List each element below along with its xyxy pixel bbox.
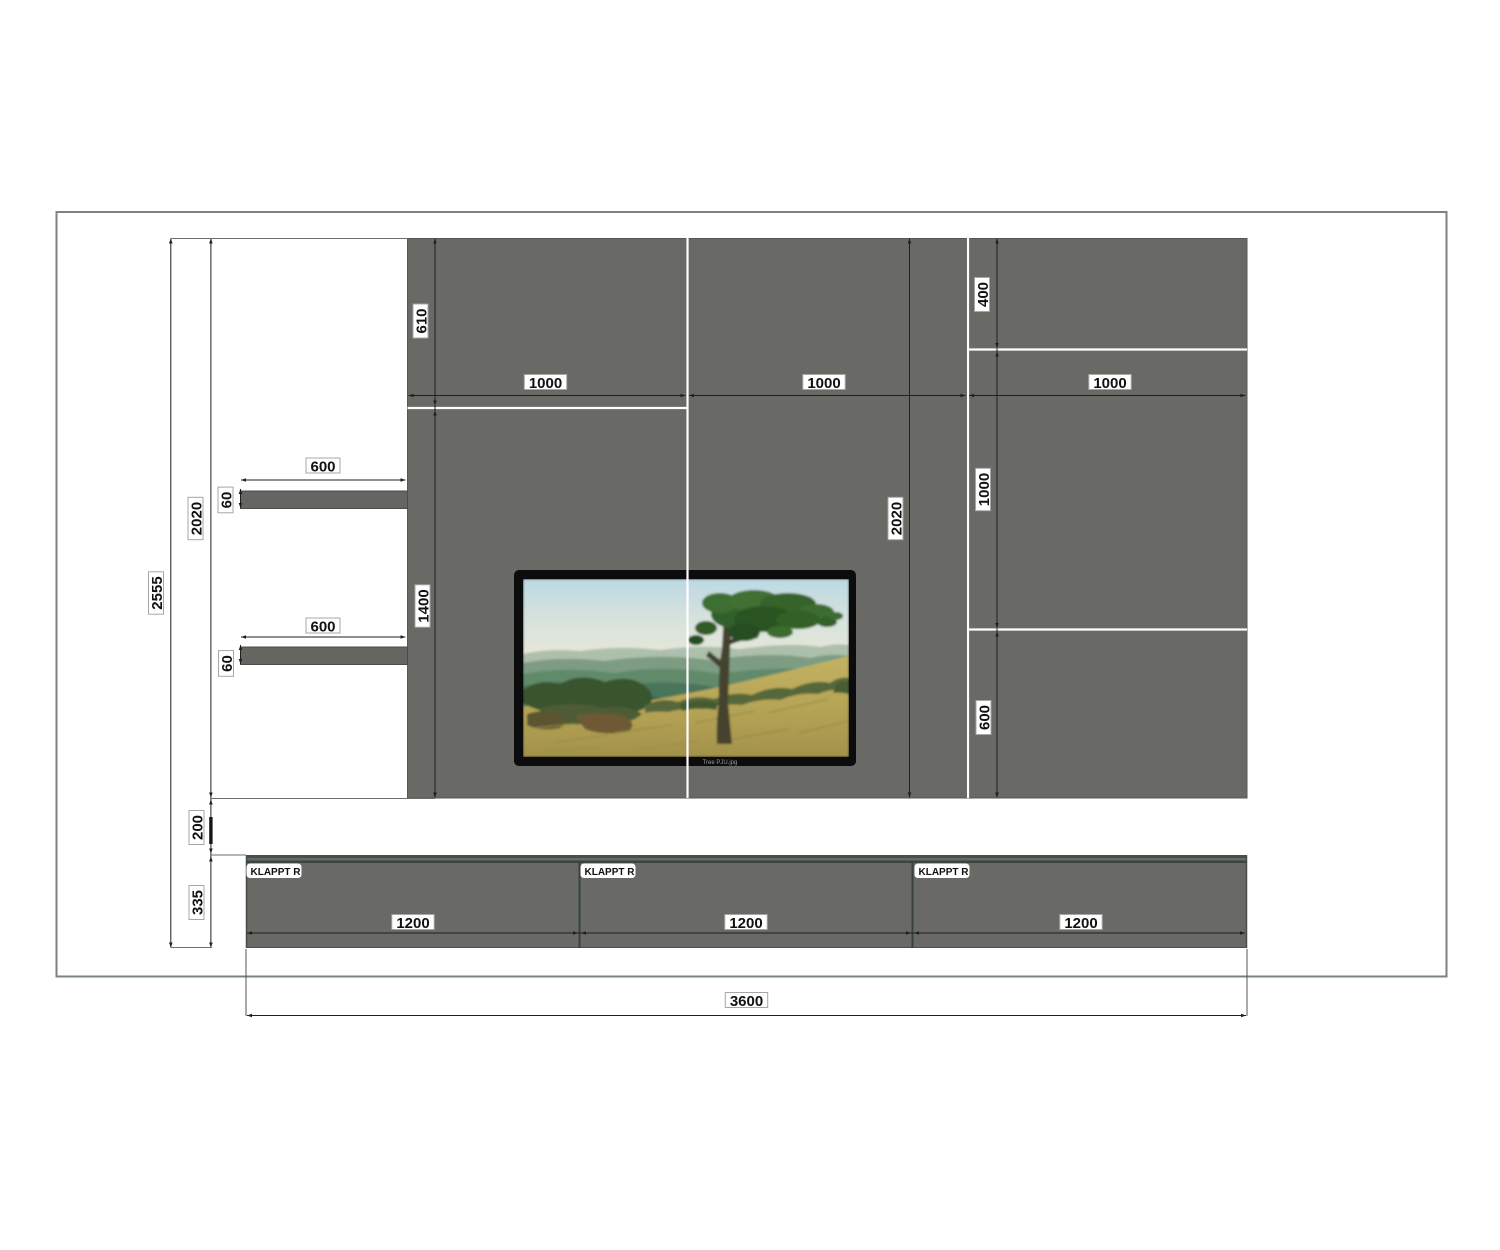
svg-text:1200: 1200 — [1064, 915, 1097, 932]
svg-text:1400: 1400 — [416, 589, 433, 622]
svg-text:1000: 1000 — [976, 473, 993, 506]
svg-text:KLAPPT R: KLAPPT R — [919, 867, 970, 878]
svg-text:1000: 1000 — [807, 375, 840, 392]
svg-text:335: 335 — [190, 890, 207, 915]
svg-text:600: 600 — [977, 705, 994, 730]
svg-text:Tree PJU.jpg: Tree PJU.jpg — [703, 760, 738, 766]
svg-text:60: 60 — [219, 655, 236, 672]
svg-text:60: 60 — [219, 492, 236, 509]
svg-text:KLAPPT R: KLAPPT R — [251, 867, 302, 878]
svg-text:2555: 2555 — [149, 576, 166, 609]
svg-text:1200: 1200 — [396, 915, 429, 932]
svg-text:2020: 2020 — [189, 502, 206, 535]
svg-text:KLAPPT R: KLAPPT R — [585, 867, 636, 878]
svg-text:3600: 3600 — [730, 993, 763, 1010]
svg-text:1000: 1000 — [529, 375, 562, 392]
svg-text:1200: 1200 — [729, 915, 762, 932]
svg-text:610: 610 — [414, 308, 431, 333]
svg-text:200: 200 — [190, 815, 207, 840]
svg-text:400: 400 — [975, 282, 992, 307]
svg-text:600: 600 — [310, 619, 335, 636]
svg-text:2020: 2020 — [889, 502, 906, 535]
svg-text:1000: 1000 — [1093, 375, 1126, 392]
svg-text:600: 600 — [310, 459, 335, 476]
